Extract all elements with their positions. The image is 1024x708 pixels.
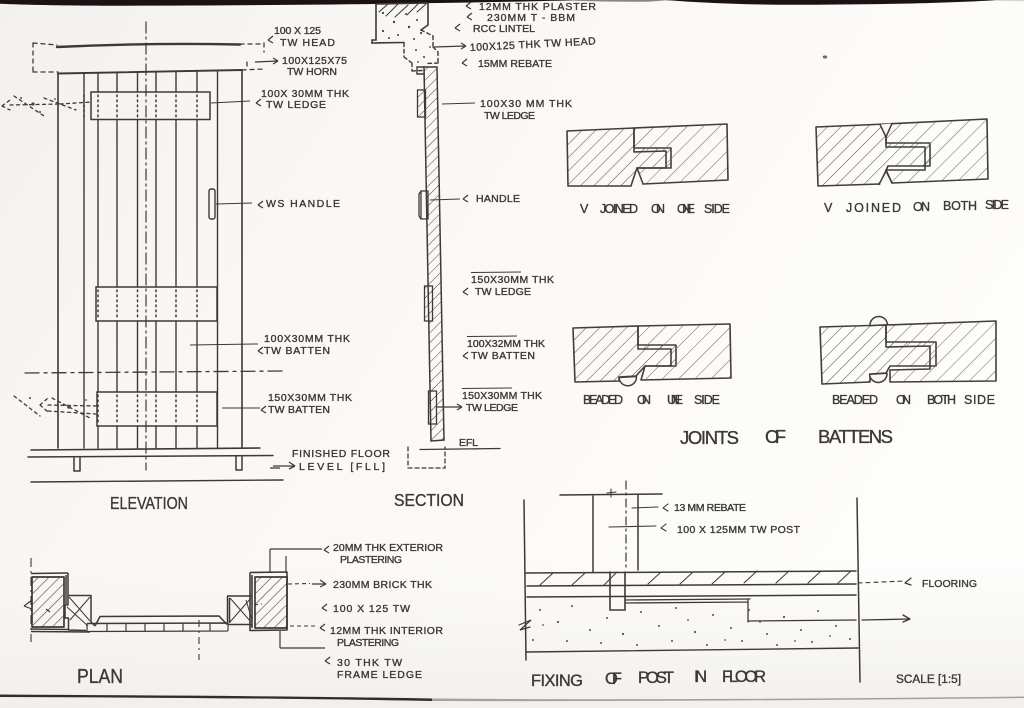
svg-text:TW LEDGE: TW LEDGE	[475, 286, 531, 298]
svg-text:TW HORN: TW HORN	[287, 66, 337, 78]
svg-text:UNE: UNE	[667, 393, 683, 407]
svg-text:BEADED: BEADED	[583, 393, 623, 407]
svg-text:ON: ON	[913, 200, 930, 214]
svg-text:ELEVATION: ELEVATION	[110, 493, 188, 513]
svg-text:SCALE [1:5]: SCALE [1:5]	[896, 674, 961, 686]
svg-text:13 MM REBATE: 13 MM REBATE	[674, 502, 746, 514]
svg-text:IN: IN	[694, 668, 707, 686]
svg-text:RCC LINTEL: RCC LINTEL	[473, 23, 535, 35]
svg-text:FRAME LEDGE: FRAME LEDGE	[337, 669, 422, 681]
svg-text:TW BATTEN: TW BATTEN	[264, 345, 330, 357]
svg-text:HANDLE: HANDLE	[476, 193, 520, 205]
svg-text:EFL: EFL	[459, 437, 478, 449]
svg-text:TW LEDGE: TW LEDGE	[266, 99, 326, 111]
svg-text:OF: OF	[765, 426, 786, 447]
svg-text:TW LEDGE: TW LEDGE	[484, 110, 535, 122]
svg-text:BOTH: BOTH	[927, 393, 956, 407]
svg-text:BOTH: BOTH	[943, 199, 977, 213]
svg-text:SECTION: SECTION	[394, 490, 464, 510]
svg-text:FIXING: FIXING	[531, 672, 583, 690]
svg-text:100X30 MM THK: 100X30 MM THK	[480, 98, 572, 110]
svg-text:BEADED: BEADED	[832, 393, 878, 407]
svg-text:FINISHED FLOOR: FINISHED FLOOR	[292, 448, 390, 460]
svg-text:230MM BRICK THK: 230MM BRICK THK	[333, 579, 432, 591]
svg-text:ONE: ONE	[677, 202, 695, 216]
svg-text:TW BATTEN: TW BATTEN	[268, 404, 330, 416]
svg-text:V: V	[580, 202, 589, 216]
svg-text:100X32MM THK: 100X32MM THK	[467, 338, 545, 350]
svg-text:ON: ON	[896, 393, 911, 407]
svg-text:JOINTS: JOINTS	[680, 427, 739, 448]
svg-text:100 X 125 TW: 100 X 125 TW	[333, 603, 410, 615]
svg-text:BATTENS: BATTENS	[818, 426, 893, 447]
svg-text:TW LEDGE: TW LEDGE	[466, 402, 518, 414]
svg-text:100 X 125MM TW POST: 100 X 125MM TW POST	[677, 524, 801, 536]
svg-text:150X30MM THK: 150X30MM THK	[471, 274, 554, 286]
svg-text:150X30MM THK: 150X30MM THK	[268, 392, 352, 404]
svg-text:150X30MM THK: 150X30MM THK	[462, 390, 542, 402]
svg-text:PLASTERING: PLASTERING	[337, 637, 399, 649]
svg-text:30 THK TW: 30 THK TW	[337, 657, 402, 669]
svg-text:SIDE: SIDE	[964, 393, 995, 407]
svg-text:JOINED: JOINED	[600, 202, 638, 216]
svg-text:100 X 125: 100 X 125	[274, 25, 321, 37]
svg-text:TW BATTEN: TW BATTEN	[471, 350, 535, 362]
svg-text:PLAN: PLAN	[77, 666, 123, 688]
svg-text:FLOOR: FLOOR	[722, 668, 766, 686]
svg-text:FLOORING: FLOORING	[922, 578, 977, 590]
svg-text:PLASTERING: PLASTERING	[340, 554, 402, 566]
svg-text:20MM THK EXTERIOR: 20MM THK EXTERIOR	[333, 542, 443, 554]
svg-text:OF: OF	[605, 670, 622, 688]
svg-text:JOINED: JOINED	[846, 201, 901, 215]
svg-text:ON: ON	[651, 202, 665, 216]
svg-text:100X30MM THK: 100X30MM THK	[264, 333, 350, 345]
svg-text:ON: ON	[637, 393, 651, 407]
svg-text:WS HANDLE: WS HANDLE	[266, 198, 340, 210]
svg-text:SIDE: SIDE	[985, 198, 1009, 212]
svg-text:15MM REBATE: 15MM REBATE	[478, 58, 552, 70]
svg-text:TW HEAD: TW HEAD	[280, 37, 335, 49]
svg-text:V: V	[824, 201, 833, 215]
svg-text:POST: POST	[638, 669, 674, 687]
svg-text:SIDE: SIDE	[704, 202, 730, 216]
svg-text:12MM THK INTERIOR: 12MM THK INTERIOR	[330, 625, 443, 637]
svg-text:SIDE: SIDE	[694, 393, 720, 407]
